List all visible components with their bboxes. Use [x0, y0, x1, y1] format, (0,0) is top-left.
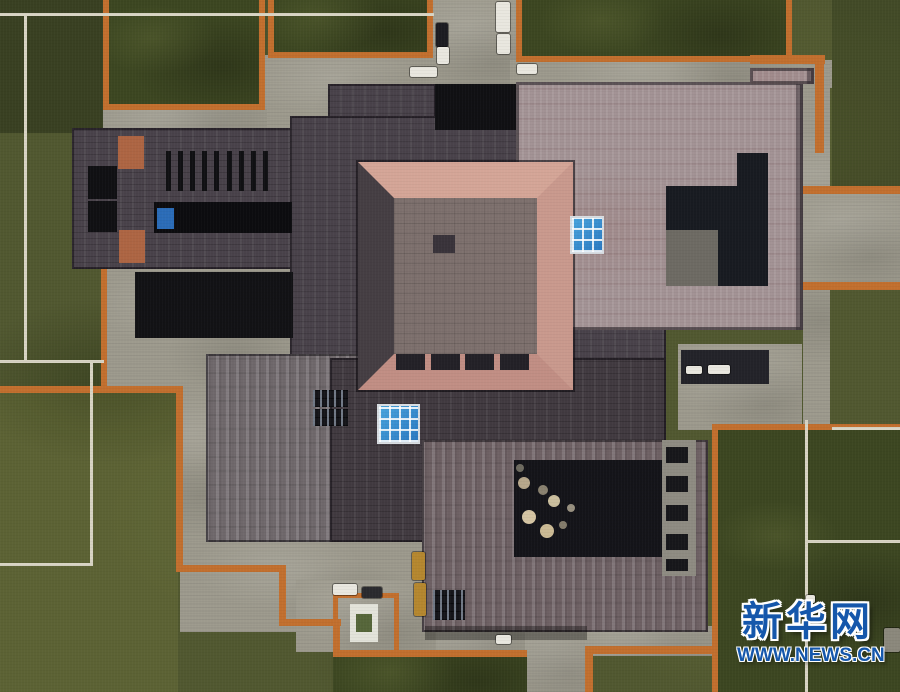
- aerial-photo: 新华网 WWW.NEWS.CN: [0, 0, 900, 692]
- watermark-url: WWW.NEWS.CN: [737, 646, 879, 667]
- watermark: 新华网 WWW.NEWS.CN: [737, 601, 879, 667]
- watermark-site-name: 新华网: [737, 601, 879, 643]
- photo-grain: [0, 0, 900, 692]
